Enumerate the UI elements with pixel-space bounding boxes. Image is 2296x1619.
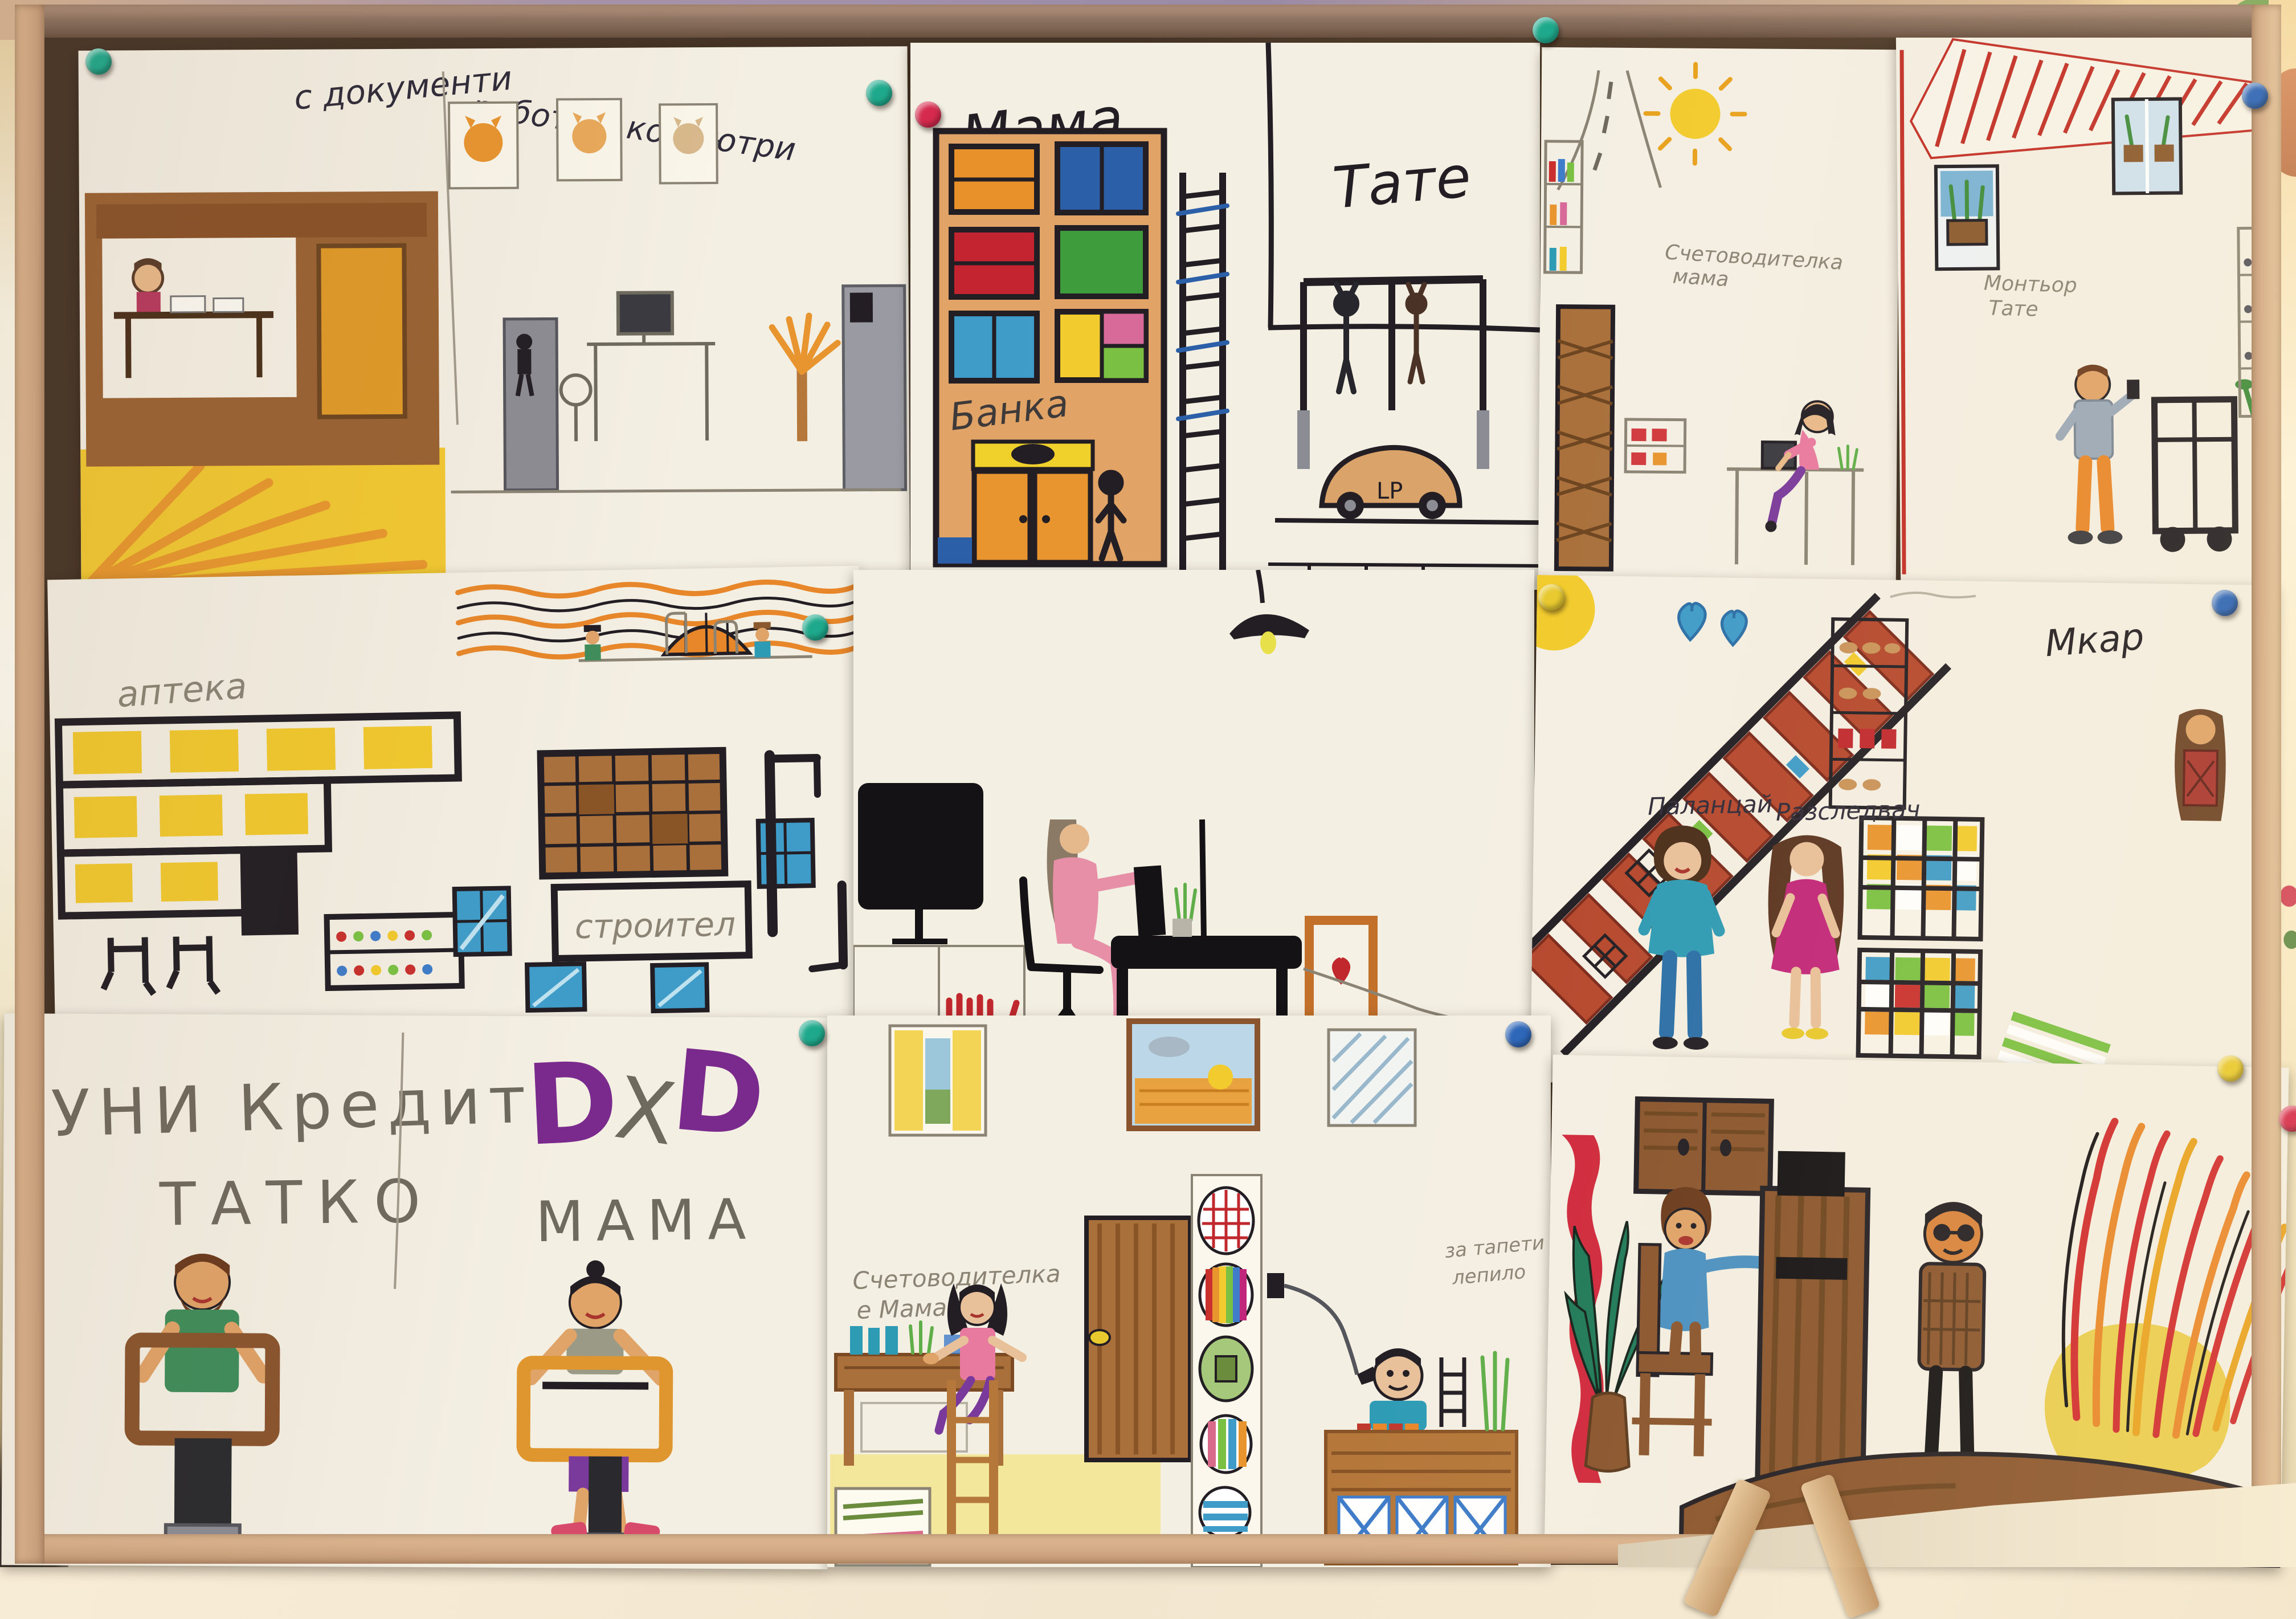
brown-wall-shade (96, 203, 427, 239)
drawing-accountant-interior: Счетоводителка е Мама тапети за тапети л… (827, 1016, 1551, 1567)
ladder (1178, 173, 1227, 576)
shopper-on-escalator (2174, 709, 2226, 821)
caption-accountant-mom: Счетоводителка (852, 1259, 1061, 1295)
red-border-line (1899, 50, 1906, 574)
desk-with-laptop (1111, 819, 1302, 1046)
blue-shirt (1658, 1248, 1710, 1332)
detective-figure (1766, 835, 1844, 1040)
drawing-unicredit: УНИ Кредит ТАТКО D X D МАМА (1, 1013, 830, 1569)
machine-column-2 (589, 1457, 622, 1536)
black-pants (1931, 1372, 1969, 1461)
woman-at-computer (1023, 819, 1154, 1045)
caption-glue: за тапети (1444, 1231, 1545, 1263)
computer-room-scene (449, 97, 906, 492)
man-with-sunglasses (1911, 1201, 1991, 1478)
orange-tree (772, 316, 838, 442)
caption-detective: Разследвач (1775, 796, 1921, 826)
caption-policeman: Паланцай (1648, 790, 1773, 821)
bookshelf (1545, 141, 1583, 272)
caption-builder: строител (574, 905, 736, 947)
caption-tate: Тате (1330, 143, 1473, 222)
pushpin-yellow-icon (2217, 1055, 2244, 1082)
caption-unicredit: УНИ Кредит (50, 1063, 534, 1152)
pushpin-red-icon (915, 101, 941, 128)
board-frame-top (15, 5, 2281, 38)
caption-tatko: ТАТКО (158, 1167, 435, 1239)
pushpin-green-icon (802, 614, 828, 641)
wooden-tower (1556, 307, 1613, 569)
caption-accountant-mom-2: е Мама (856, 1293, 947, 1324)
drawing-pharmacy-builder: аптека (47, 566, 867, 1036)
computer-desk (561, 292, 716, 441)
sunset-waves (457, 581, 857, 659)
drawing-fireplace (1544, 1055, 2289, 1568)
goods-grid-shelves (1858, 818, 1983, 1057)
desk-plant-2 (1482, 1353, 1507, 1429)
laptop-screen (1134, 865, 1166, 936)
heart-picture (1309, 920, 1373, 1022)
policeman-figure (1643, 825, 1721, 1050)
drawing-mechanic-dad: Монтьор Тате (1896, 30, 2271, 589)
interior-door (1086, 1218, 1190, 1460)
chairs (103, 936, 218, 994)
builder-figure-1 (584, 625, 602, 661)
pushpin-blue-icon (1505, 1021, 1531, 1047)
sun (1645, 64, 1745, 164)
floor-divider (1268, 327, 1540, 330)
tv-and-cabinet (853, 783, 1024, 1047)
caption-market-name: Мкар (2044, 616, 2146, 666)
window-with-plants-right (2113, 99, 2181, 194)
dark-brick (579, 784, 615, 814)
hanging-figure-2 (1408, 284, 1425, 382)
scaffold-beam (579, 656, 812, 660)
pushpin-blue-icon (2212, 590, 2238, 616)
orange-pants (2082, 462, 2107, 528)
mechanic-figure (2060, 364, 2141, 544)
window-sunset (1129, 1021, 1257, 1128)
caption-mechanic: Монтьор (1983, 272, 2077, 297)
blue-hearts (1678, 603, 1747, 645)
caption-accountant-2: мама (1672, 264, 1730, 291)
builder-scene: строител (449, 581, 864, 1014)
pink-body (1053, 857, 1098, 944)
machine-column (174, 1438, 232, 1526)
handlebar (542, 1385, 648, 1386)
pushpin-green-icon (799, 1020, 825, 1046)
pushpin-yellow-icon (1538, 584, 1564, 610)
drawing-sheet-pharmacy-builder: аптека (47, 566, 867, 1036)
cat-posters (449, 99, 717, 188)
girl-pink-top (960, 1328, 995, 1380)
drawing-sheet-fireplace (1544, 1055, 2289, 1568)
caption-pharmacy: аптека (116, 665, 248, 716)
pushpin-green-icon (1533, 17, 1559, 43)
builder-figure-2 (754, 622, 771, 658)
builder-caption-box: строител (554, 884, 749, 959)
drawing-market: Мкар (1530, 575, 2277, 1092)
sun-corner (1530, 575, 1596, 651)
office-room-scene (79, 191, 446, 592)
wallpaper-sample-strip (1192, 1175, 1261, 1567)
drawing-bank-scene: Мама Тате Банка (910, 43, 1540, 590)
office-door (318, 246, 405, 417)
pharmacy-building (58, 715, 461, 996)
drawing-sheet-bank: Мама Тате Банка (910, 43, 1540, 590)
caption-mechanic-2: Тате (1988, 296, 2038, 321)
blue-step (938, 537, 972, 564)
mom-at-machine (523, 1260, 667, 1561)
dad-at-machine (132, 1253, 273, 1560)
window-with-plants-left (1936, 166, 1999, 269)
drawing-sheet-documents-computers: с документи работи с компютри (79, 46, 910, 592)
dark-brick-2 (652, 814, 688, 844)
desk-lamp-cord (1267, 1273, 1379, 1385)
drawing-accountant-mom: Счетоводителка мама (1538, 47, 1900, 585)
drawing-sheet-mechanic-dad: Монтьор Тате (1896, 30, 2271, 589)
girl-at-laptop (1726, 401, 1864, 565)
car-letters: LP (1376, 478, 1403, 504)
caption-dxd-d1: D (523, 1037, 621, 1171)
drawing-sheet-accountant-mom: Счетоводителка мама (1538, 47, 1900, 585)
board-frame-right (2252, 5, 2281, 1564)
board-frame-left (15, 5, 44, 1564)
drawing-sheet-market: Мкар (1530, 575, 2277, 1092)
stove-handle (1776, 1257, 1848, 1280)
police-pants (1666, 957, 1696, 1033)
striped-roof (1910, 36, 2265, 158)
ceiling-lamp (1229, 570, 1309, 654)
bread-shelf (1831, 619, 1907, 808)
small-shelf (1625, 419, 1685, 472)
car: LP (1322, 447, 1460, 519)
window-yellow-curtains (890, 1026, 986, 1135)
caption-mama-caps: МАМА (535, 1187, 759, 1255)
panel-divider (1268, 43, 1271, 328)
mini-ladder (1441, 1357, 1464, 1427)
purple-legs (1772, 471, 1801, 522)
window-blue-hatch (1329, 1030, 1415, 1125)
bank-building: Банка (936, 131, 1164, 564)
road-line-1 (1275, 520, 1540, 523)
drawing-home-office (853, 570, 1534, 1047)
wall-cabinet (1636, 1099, 1772, 1193)
pushpin-green-icon (85, 48, 112, 75)
stove-screen (1778, 1151, 1845, 1197)
pushpin-green-icon (866, 80, 892, 106)
drawing-sheet-home-office (853, 570, 1534, 1047)
machine-frame-orange (523, 1363, 666, 1455)
caption-dxd-d2: D (667, 1025, 770, 1163)
drawing-sheet-unicredit: УНИ Кредит ТАТКО D X D МАМА (1, 1013, 830, 1569)
monitor-pole (1202, 819, 1204, 939)
pull-up-station (1304, 279, 1483, 469)
pharmacy-shelf (327, 915, 462, 988)
boy-at-desk (1326, 1348, 1517, 1564)
pharmacy-door (240, 849, 299, 936)
desk-plant (1176, 884, 1195, 920)
hanging-figure-1 (1336, 284, 1357, 392)
pushpin-blue-icon (2242, 83, 2268, 109)
panel-window (850, 293, 873, 323)
caption-glue-2: лепило (1451, 1261, 1527, 1290)
drawing-documents-computers: с документи работи с компютри (79, 46, 910, 592)
green-shirt (165, 1310, 239, 1393)
pencil-signature-squiggle (1890, 592, 1976, 598)
drawing-sheet-accountant-interior: Счетоводителка е Мама тапети за тапети л… (827, 1016, 1551, 1567)
machine-cart (2154, 399, 2235, 552)
